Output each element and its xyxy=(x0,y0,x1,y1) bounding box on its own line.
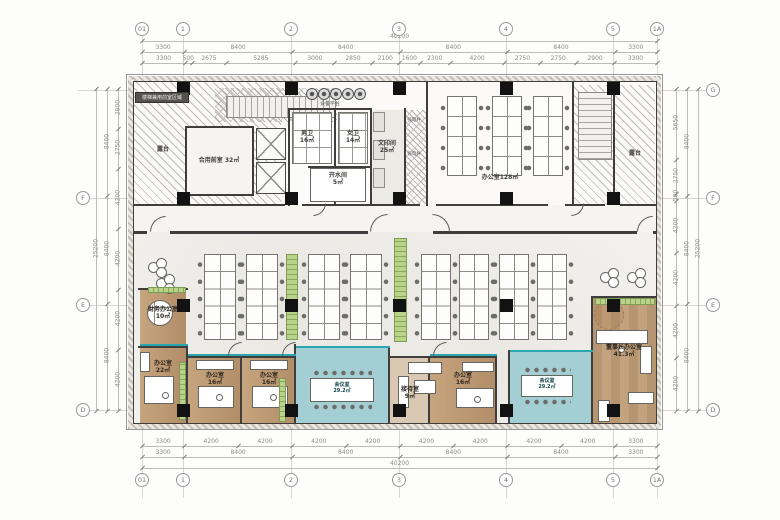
chairs-row xyxy=(568,256,574,338)
structural-column xyxy=(393,82,406,95)
grid-bubble-bottom: 1 xyxy=(176,473,190,487)
desk-cluster xyxy=(537,254,567,340)
meeting-chairs xyxy=(312,370,372,376)
office-16a-sofa xyxy=(196,360,234,370)
dim-text: 4200 xyxy=(673,320,680,342)
interior-wall xyxy=(390,356,430,358)
structural-column xyxy=(393,192,406,205)
interior-wall xyxy=(240,356,242,424)
lounge-chair xyxy=(635,277,646,288)
dim-text: 8400 xyxy=(104,130,111,152)
dim-text: 3300 xyxy=(625,55,645,62)
desk-chair xyxy=(216,394,223,401)
chairs-row xyxy=(279,256,285,338)
vent-fan xyxy=(306,88,318,100)
glass-partition xyxy=(296,346,390,348)
vent-fan xyxy=(342,88,354,100)
structural-column xyxy=(393,299,406,312)
grid-bubble-top: 3 xyxy=(392,22,406,36)
dim-text: 2100 xyxy=(375,55,395,62)
chairs-row xyxy=(530,256,536,338)
interior-wall xyxy=(188,356,296,358)
office-16b-label: 办公室 16㎡ xyxy=(254,372,284,386)
office-16a-label: 办公室 16㎡ xyxy=(200,372,230,386)
womens-toilet-label: 女卫 14㎡ xyxy=(338,130,368,144)
structural-column xyxy=(500,299,513,312)
reception-label: 接待室 9㎡ xyxy=(392,386,428,400)
interior-wall xyxy=(572,81,574,206)
interior-wall xyxy=(426,81,428,206)
dimension-line xyxy=(142,468,657,469)
dim-text: 5650 xyxy=(673,112,680,134)
dim-text: 3000 xyxy=(305,55,325,62)
desk-cluster xyxy=(492,96,522,176)
office-16b-sofa xyxy=(250,360,288,370)
desk-cluster xyxy=(421,254,451,340)
dim-text: 4200 xyxy=(115,247,122,269)
equipment-platform-label: 设备平台 xyxy=(306,101,354,107)
meeting-chairs xyxy=(312,404,372,410)
grid-bubble-bottom: 5 xyxy=(606,473,620,487)
interior-wall xyxy=(133,204,285,206)
dimension-line xyxy=(676,88,677,410)
desk-cluster xyxy=(533,96,563,176)
planter-strip xyxy=(595,298,655,305)
desk-cluster xyxy=(447,96,477,176)
chairs-row xyxy=(452,256,458,338)
grid-bubble-top: 1A xyxy=(650,22,664,36)
office-22-desk xyxy=(144,376,174,404)
structural-column xyxy=(177,404,190,417)
interior-wall xyxy=(170,231,368,234)
structural-column xyxy=(607,82,620,95)
dim-text: 2750 xyxy=(548,55,568,62)
reception-sofa xyxy=(408,362,442,374)
dim-text: 4200 xyxy=(115,308,122,330)
desk-cluster xyxy=(246,254,278,340)
dim-text: 8400 xyxy=(228,44,248,51)
chairs-row xyxy=(301,256,307,338)
dim-text: 8400 xyxy=(443,44,463,51)
grid-bubble-bottom: 1A xyxy=(650,473,664,487)
grid-bubble-left: F xyxy=(76,191,90,205)
structural-column xyxy=(607,404,620,417)
interior-wall xyxy=(620,204,657,206)
dim-text: 8400 xyxy=(228,449,248,456)
planter-strip xyxy=(286,254,298,340)
dim-text: 4200 xyxy=(363,438,383,445)
dim-text: 3300 xyxy=(154,55,174,62)
strong-electric-shaft-label: 强电井 xyxy=(403,118,425,123)
chairs-row xyxy=(564,98,570,174)
grid-bubble-right: D xyxy=(706,403,720,417)
meeting-room-b-label: 会议室 29.2㎡ xyxy=(524,378,570,390)
dim-text: 3300 xyxy=(153,438,173,445)
grid-bubble-top: 01 xyxy=(135,22,149,36)
grid-bubble-left: D xyxy=(76,403,90,417)
chairs-row xyxy=(492,256,498,338)
interior-wall xyxy=(185,194,254,196)
dim-text: 8400 xyxy=(684,130,691,152)
office-22-label: 办公室 22㎡ xyxy=(140,360,186,374)
desk-cluster xyxy=(459,254,489,340)
dim-text: 5285 xyxy=(251,55,271,62)
grid-bubble-bottom: 4 xyxy=(499,473,513,487)
desk-cluster xyxy=(308,254,340,340)
interior-wall xyxy=(591,296,593,424)
dim-text: 40200 xyxy=(390,460,410,467)
desk-chair xyxy=(270,394,277,401)
interior-wall xyxy=(613,85,615,205)
interior-wall xyxy=(252,126,254,196)
structural-column xyxy=(393,404,406,417)
dim-text: 3300 xyxy=(626,449,646,456)
dim-text: 8400 xyxy=(104,238,111,260)
terrace-right-label: 露台 xyxy=(620,150,650,157)
dim-text: 8400 xyxy=(336,44,356,51)
dim-text: 1600 xyxy=(399,55,419,62)
dim-text: 4200 xyxy=(416,438,436,445)
dim-text: 8400 xyxy=(336,449,356,456)
dim-text: 8400 xyxy=(684,238,691,260)
dim-text: 2675 xyxy=(199,55,219,62)
desk-cluster xyxy=(350,254,382,340)
grid-bubble-bottom: 3 xyxy=(392,473,406,487)
floorplan-sheet: 010111223344551A1AGFEDFED402003300840084… xyxy=(0,0,780,520)
dim-text: 4200 xyxy=(201,438,221,445)
interior-wall xyxy=(370,108,372,206)
grid-bubble-top: 5 xyxy=(606,22,620,36)
dim-text: 4200 xyxy=(673,214,680,236)
grid-bubble-right: G xyxy=(706,83,720,97)
office-top-label: 办公室128㎡ xyxy=(468,174,532,181)
grid-bubble-top: 2 xyxy=(284,22,298,36)
dim-text: 8400 xyxy=(684,345,691,367)
dim-text: 25200 xyxy=(93,238,100,260)
glass-partition xyxy=(188,354,296,356)
chairman-office-label: 董事长办公室 41.3㎡ xyxy=(594,344,654,358)
dim-text: 2850 xyxy=(343,55,363,62)
meeting-chairs xyxy=(523,367,571,373)
dim-text: 4200 xyxy=(309,438,329,445)
interior-wall xyxy=(495,356,497,424)
dim-text: 4200 xyxy=(524,438,544,445)
grid-bubble-bottom: 01 xyxy=(135,473,149,487)
dim-text: 4200 xyxy=(467,55,487,62)
interior-wall xyxy=(185,126,254,128)
planter-strip xyxy=(148,287,186,293)
interior-wall xyxy=(436,204,548,206)
structural-column xyxy=(285,192,298,205)
dim-text: 4200 xyxy=(255,438,275,445)
dim-text: 2800 xyxy=(115,97,122,119)
meeting-chairs xyxy=(523,399,571,405)
interior-wall xyxy=(133,231,147,234)
chairs-row xyxy=(478,98,484,174)
structural-column xyxy=(285,82,298,95)
structural-column xyxy=(285,404,298,417)
dim-text: 500 xyxy=(673,185,680,207)
dim-text: 4200 xyxy=(578,438,598,445)
vent-fan xyxy=(330,88,342,100)
stair-note-label: 楼梯兼用前室区域 xyxy=(135,92,189,103)
meeting-room-a-label: 会议室 29.2㎡ xyxy=(320,382,364,394)
glass-partition xyxy=(140,344,188,346)
glass-partition xyxy=(510,350,593,352)
terrace-left-label: 露台 xyxy=(148,146,178,153)
structural-column xyxy=(500,82,513,95)
dim-text: 8400 xyxy=(551,44,571,51)
interior-wall xyxy=(288,108,372,110)
chairs-row xyxy=(414,256,420,338)
structural-column xyxy=(607,192,620,205)
office-16c-label: 办公室 16㎡ xyxy=(448,372,478,386)
desk-chair xyxy=(162,392,169,399)
dim-text: 4200 xyxy=(470,438,490,445)
grid-bubble-right: E xyxy=(706,298,720,312)
interior-wall xyxy=(138,346,188,348)
grid-bubble-right: F xyxy=(706,191,720,205)
dimension-line xyxy=(142,41,657,42)
office-16c-sofa xyxy=(462,362,494,372)
planter-strip xyxy=(394,238,407,342)
chairman-sofa xyxy=(628,392,654,404)
grid-bubble-bottom: 2 xyxy=(284,473,298,487)
vent-fan xyxy=(318,88,330,100)
desk-cluster xyxy=(204,254,236,340)
structural-column xyxy=(607,299,620,312)
hot-water-label: 开水间 5㎡ xyxy=(314,172,362,186)
desk-chair xyxy=(474,396,481,403)
grid-bubble-top: 4 xyxy=(499,22,513,36)
dim-text: 2750 xyxy=(512,55,532,62)
interior-wall xyxy=(430,356,497,358)
dim-text: 25200 xyxy=(695,238,702,260)
dim-text: 3300 xyxy=(626,44,646,51)
dim-text: 2300 xyxy=(425,55,445,62)
dim-text: 2900 xyxy=(585,55,605,62)
finance-office-label: 财务办公室 10㎡ xyxy=(140,306,186,320)
chairman-desk xyxy=(596,330,648,344)
dim-text: 8400 xyxy=(443,449,463,456)
generated-drawing-layer: 010111223344551A1AGFEDFED402003300840084… xyxy=(0,0,780,520)
dim-text: 3300 xyxy=(153,44,173,51)
weak-electric-shaft-label: 弱电井 xyxy=(403,152,425,157)
structural-column xyxy=(500,404,513,417)
chairs-row xyxy=(239,256,245,338)
structural-column xyxy=(285,299,298,312)
chairs-row xyxy=(197,256,203,338)
dim-text: 3300 xyxy=(153,449,173,456)
structural-column xyxy=(177,192,190,205)
dim-text: 3300 xyxy=(626,438,646,445)
dim-text: 8400 xyxy=(104,345,111,367)
interior-wall xyxy=(433,231,637,234)
dim-text: 8400 xyxy=(551,449,571,456)
dim-text: 2750 xyxy=(673,165,680,187)
interior-wall xyxy=(653,231,657,234)
grid-bubble-left: E xyxy=(76,298,90,312)
desk-cluster xyxy=(499,254,529,340)
structural-column xyxy=(500,192,513,205)
chairs-row xyxy=(485,98,491,174)
chairs-row xyxy=(526,98,532,174)
chairs-row xyxy=(440,98,446,174)
grid-bubble-top: 1 xyxy=(176,22,190,36)
dim-text: 4200 xyxy=(115,187,122,209)
dim-text: 4200 xyxy=(673,372,680,394)
print-room-label: 文印间 25㎡ xyxy=(371,140,403,154)
dim-text: 4200 xyxy=(673,267,680,289)
chairs-row xyxy=(343,256,349,338)
dim-text: 2750 xyxy=(115,137,122,159)
lounge-chair xyxy=(608,277,619,288)
dim-text: 4200 xyxy=(115,368,122,390)
chairs-row xyxy=(383,256,389,338)
vestibule-label: 合用前室 32㎡ xyxy=(186,157,252,164)
mens-toilet-label: 男卫 16㎡ xyxy=(292,130,322,144)
vent-fan xyxy=(354,88,366,100)
